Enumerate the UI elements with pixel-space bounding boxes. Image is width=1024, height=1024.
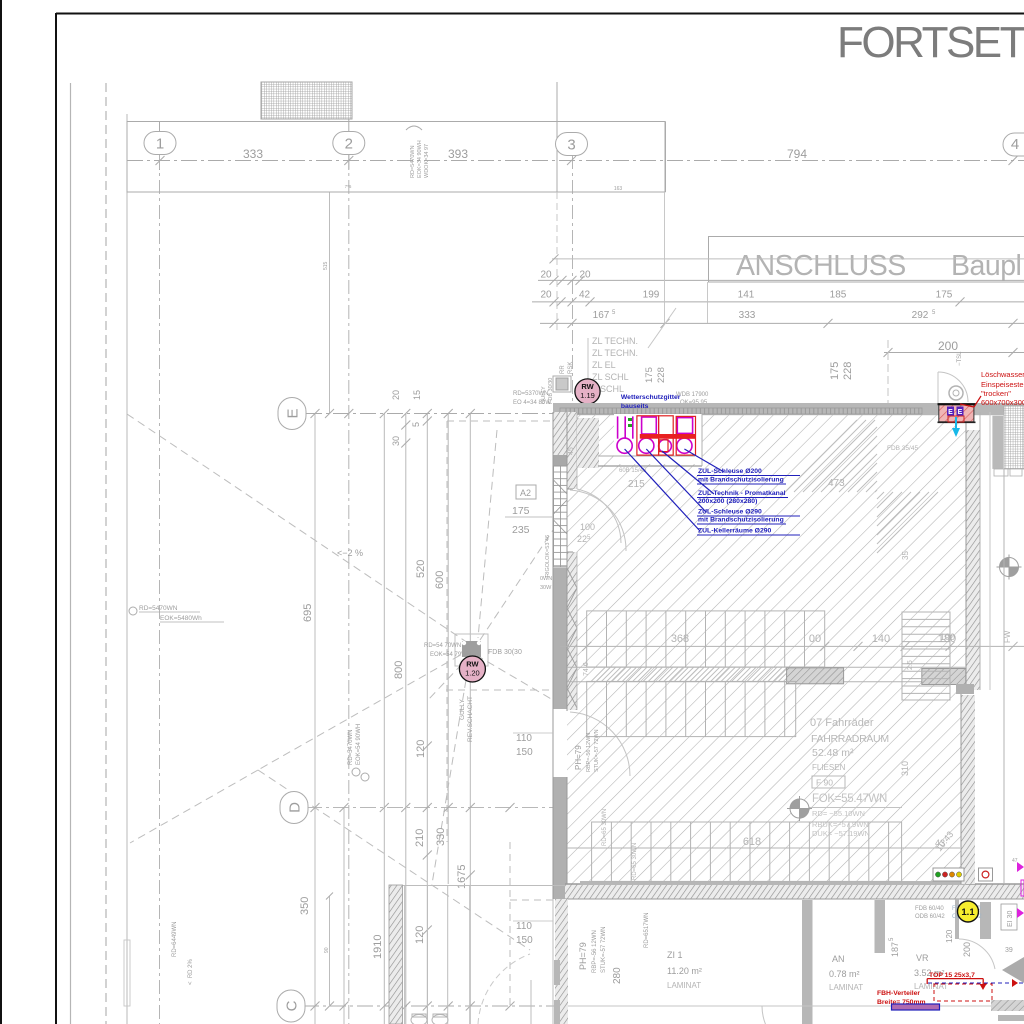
- svg-text:RD=6517WN: RD=6517WN: [644, 912, 650, 948]
- svg-text:ZUL-Schleuse Ø200: ZUL-Schleuse Ø200: [698, 468, 762, 475]
- svg-text:RW: RW: [466, 660, 479, 669]
- svg-text:LAMINAT: LAMINAT: [829, 983, 863, 992]
- svg-text:15: 15: [412, 390, 422, 400]
- svg-text:RD=6449WN: RD=6449WN: [172, 921, 178, 957]
- svg-text:618: 618: [743, 836, 761, 848]
- svg-text:EOK=54 90WH: EOK=54 90WH: [356, 724, 362, 765]
- svg-text:−TSL: −TSL: [957, 351, 963, 366]
- svg-text:STUK=-57 72WN: STUK=-57 72WN: [601, 926, 607, 973]
- svg-text:3: 3: [567, 136, 575, 153]
- svg-text:RD=5470WN: RD=5470WN: [348, 729, 354, 765]
- svg-text:Wetterschutzgitter: Wetterschutzgitter: [621, 394, 681, 401]
- svg-text:FORTSETZ: FORTSETZ: [837, 18, 1024, 67]
- svg-text:167: 167: [593, 310, 610, 321]
- svg-text:C: C: [283, 1000, 300, 1011]
- svg-text:EOK=34 90WH: EOK=34 90WH: [417, 140, 423, 178]
- svg-text:EOK=5480Wh: EOK=5480Wh: [160, 615, 202, 622]
- svg-text:FLIESEN: FLIESEN: [812, 763, 846, 772]
- svg-text:52.48 m²: 52.48 m²: [812, 747, 854, 759]
- svg-text:120: 120: [945, 929, 954, 943]
- svg-text:ZUL-Kellerräume Ø290: ZUL-Kellerräume Ø290: [698, 528, 772, 535]
- svg-text:39: 39: [1005, 947, 1013, 954]
- svg-text:PH=79: PH=79: [574, 745, 583, 770]
- svg-text:RR: RR: [560, 365, 566, 374]
- svg-text:1: 1: [156, 135, 164, 152]
- svg-text:22: 22: [577, 534, 587, 544]
- svg-text:ZL EL: ZL EL: [592, 360, 616, 370]
- svg-text:228: 228: [656, 367, 667, 383]
- svg-text:RSK: RSK: [568, 362, 574, 374]
- svg-text:Einspeisestell: Einspeisestell: [981, 380, 1024, 389]
- svg-text:ODB 60/42: ODB 60/42: [915, 914, 945, 920]
- svg-text:30W: 30W: [540, 585, 552, 591]
- svg-text:200: 200: [938, 339, 958, 353]
- svg-text:1.19: 1.19: [580, 391, 595, 400]
- svg-text:185: 185: [830, 290, 847, 301]
- svg-text:EOK=54 79WH: EOK=54 79WH: [430, 652, 471, 658]
- svg-text:4: 4: [1011, 136, 1019, 153]
- svg-text:100: 100: [940, 632, 955, 642]
- svg-text:<−2 %: <−2 %: [337, 548, 363, 558]
- svg-text:FDB 60/40: FDB 60/40: [915, 906, 944, 912]
- svg-text:RD= −55.10WN: RD= −55.10WN: [812, 809, 865, 818]
- svg-text:ZL SCHL: ZL SCHL: [592, 372, 629, 382]
- svg-text:110: 110: [516, 733, 532, 744]
- svg-text:350: 350: [299, 897, 311, 915]
- svg-text:210: 210: [414, 829, 426, 847]
- svg-text:11.20 m²: 11.20 m²: [667, 966, 702, 976]
- svg-text:FAHRRADRAUM: FAHRRADRAUM: [811, 733, 889, 745]
- svg-text:A2: A2: [520, 488, 531, 498]
- svg-text:RD=54 70WN: RD=54 70WN: [424, 643, 461, 649]
- svg-text:393: 393: [448, 147, 468, 161]
- svg-text:FBH-Verteiler: FBH-Verteiler: [877, 990, 920, 997]
- svg-text:20: 20: [540, 290, 552, 301]
- svg-text:ZL TECHN.: ZL TECHN.: [592, 336, 638, 346]
- svg-text:47: 47: [1012, 858, 1018, 864]
- svg-text:175: 175: [829, 362, 841, 380]
- svg-text:600: 600: [434, 571, 446, 589]
- svg-text:RBP=-56 12WN: RBP=-56 12WN: [586, 733, 592, 772]
- svg-text:Baupl: Baupl: [951, 250, 1021, 282]
- svg-text:0.78 m²: 0.78 m²: [829, 969, 860, 979]
- svg-text:20: 20: [540, 270, 552, 281]
- svg-text:163: 163: [614, 186, 623, 192]
- svg-text:PH=79: PH=79: [578, 942, 588, 970]
- svg-text:Löschwasser-: Löschwasser-: [981, 370, 1024, 379]
- svg-text:DUK= −57.19WN: DUK= −57.19WN: [812, 829, 870, 838]
- svg-text:200: 200: [962, 942, 972, 957]
- svg-text:333: 333: [739, 310, 756, 321]
- svg-text:GULLY: GULLY: [459, 699, 466, 720]
- svg-text:74 6: 74 6: [583, 662, 590, 676]
- svg-text:20: 20: [391, 390, 401, 400]
- svg-text:1910: 1910: [372, 935, 384, 959]
- svg-text:140: 140: [872, 633, 890, 645]
- svg-text:RIGOLOK=53 46: RIGOLOK=53 46: [545, 535, 551, 577]
- svg-text:45: 45: [568, 447, 575, 455]
- svg-text:175: 175: [644, 367, 655, 383]
- svg-text:EO 4=34 80W: EO 4=34 80W: [513, 400, 551, 406]
- svg-text:ANSCHLUSS: ANSCHLUSS: [736, 250, 906, 282]
- svg-text:00: 00: [809, 633, 821, 645]
- svg-text:ZUL-Technik - Promatkanal: ZUL-Technik - Promatkanal: [698, 490, 786, 497]
- svg-text:WDB 17900: WDB 17900: [676, 392, 709, 398]
- svg-text:2.5: 2.5: [907, 660, 914, 670]
- svg-text:473: 473: [828, 478, 845, 489]
- svg-text:199: 199: [643, 290, 660, 301]
- svg-text:AN: AN: [832, 954, 845, 964]
- svg-text:RBP=-56 12WN: RBP=-56 12WN: [592, 930, 598, 973]
- svg-text:800: 800: [393, 661, 405, 679]
- svg-text:ZUL-Schleuse Ø290: ZUL-Schleuse Ø290: [698, 509, 762, 516]
- svg-text:STUK=-57 72WN: STUK=-57 72WN: [594, 729, 600, 772]
- svg-text:310: 310: [900, 761, 910, 776]
- svg-text:RD=5370WN: RD=5370WN: [513, 391, 549, 397]
- svg-text:RD=5470WN: RD=5470WN: [139, 605, 178, 612]
- svg-text:D: D: [286, 802, 303, 813]
- svg-text:7*6: 7*6: [345, 184, 352, 189]
- svg-text:42: 42: [579, 290, 591, 301]
- svg-text:515: 515: [323, 261, 329, 270]
- svg-text:1.20: 1.20: [465, 669, 480, 678]
- svg-text:228: 228: [842, 362, 854, 380]
- svg-text:ZL TECHN.: ZL TECHN.: [592, 348, 638, 358]
- svg-text:07 Fahrräder: 07 Fahrräder: [810, 717, 874, 729]
- svg-text:2: 2: [345, 135, 353, 152]
- svg-text:35: 35: [901, 551, 910, 560]
- svg-text:RD=65 30WN: RD=65 30WN: [632, 843, 638, 880]
- svg-text:EI 30: EI 30: [1007, 911, 1014, 927]
- svg-text:E: E: [284, 408, 301, 418]
- svg-text:110: 110: [516, 921, 532, 932]
- svg-text:368: 368: [671, 633, 689, 645]
- svg-text:30: 30: [391, 436, 401, 446]
- svg-text:RD=5470WN: RD=5470WN: [410, 145, 416, 178]
- svg-text:1.1: 1.1: [961, 907, 975, 918]
- svg-text:215: 215: [628, 479, 645, 490]
- svg-text:520: 520: [415, 560, 427, 578]
- svg-text:292: 292: [912, 310, 929, 321]
- svg-text:100: 100: [580, 522, 595, 532]
- svg-text:ZI 1: ZI 1: [667, 950, 683, 960]
- svg-text:WDOK=34 97: WDOK=34 97: [424, 144, 430, 178]
- svg-text:E: E: [958, 409, 963, 416]
- svg-text:RD=65 30WN: RD=65 30WN: [602, 809, 608, 846]
- svg-text:150: 150: [516, 747, 533, 758]
- svg-text:FDB 35/45: FDB 35/45: [887, 445, 918, 452]
- svg-text:F 90: F 90: [816, 778, 833, 788]
- svg-text:mit Brandschutzisolierung: mit Brandschutzisolierung: [698, 517, 784, 524]
- svg-text:187: 187: [890, 942, 900, 957]
- svg-text:141: 141: [738, 290, 755, 301]
- svg-text:< RD 2%: < RD 2%: [188, 958, 194, 985]
- svg-text:695: 695: [302, 604, 314, 622]
- svg-text:E: E: [948, 409, 953, 416]
- svg-text:330: 330: [435, 828, 447, 846]
- svg-text:RW: RW: [581, 382, 594, 391]
- svg-text:bauseits: bauseits: [621, 403, 649, 410]
- svg-text:LAMINAT: LAMINAT: [667, 981, 701, 990]
- svg-text:VR: VR: [916, 953, 929, 963]
- svg-text:mit Brandschutzisolierung: mit Brandschutzisolierung: [698, 477, 784, 484]
- svg-text:120: 120: [415, 740, 427, 758]
- svg-text:175: 175: [936, 290, 953, 301]
- svg-text:43: 43: [935, 838, 945, 848]
- svg-text:5: 5: [411, 422, 421, 427]
- svg-text:FDB 30(30: FDB 30(30: [488, 649, 522, 656]
- svg-text:333: 333: [243, 147, 263, 161]
- svg-text:280: 280: [612, 967, 623, 984]
- svg-text:RBUK=−57.9WN: RBUK=−57.9WN: [812, 820, 869, 829]
- svg-text:794: 794: [787, 147, 807, 161]
- svg-text:FOK=55.47WN: FOK=55.47WN: [812, 793, 887, 805]
- svg-text:175: 175: [512, 505, 530, 517]
- svg-text:120: 120: [414, 926, 426, 944]
- svg-text:SCHL: SCHL: [600, 384, 624, 394]
- svg-text:"trocken": "trocken": [981, 389, 1011, 398]
- svg-text:150: 150: [516, 935, 533, 946]
- svg-text:235: 235: [512, 524, 530, 536]
- svg-text:REV.SCHACHT: REV.SCHACHT: [467, 696, 474, 742]
- svg-text:200x200 (280x280): 200x200 (280x280): [698, 498, 757, 505]
